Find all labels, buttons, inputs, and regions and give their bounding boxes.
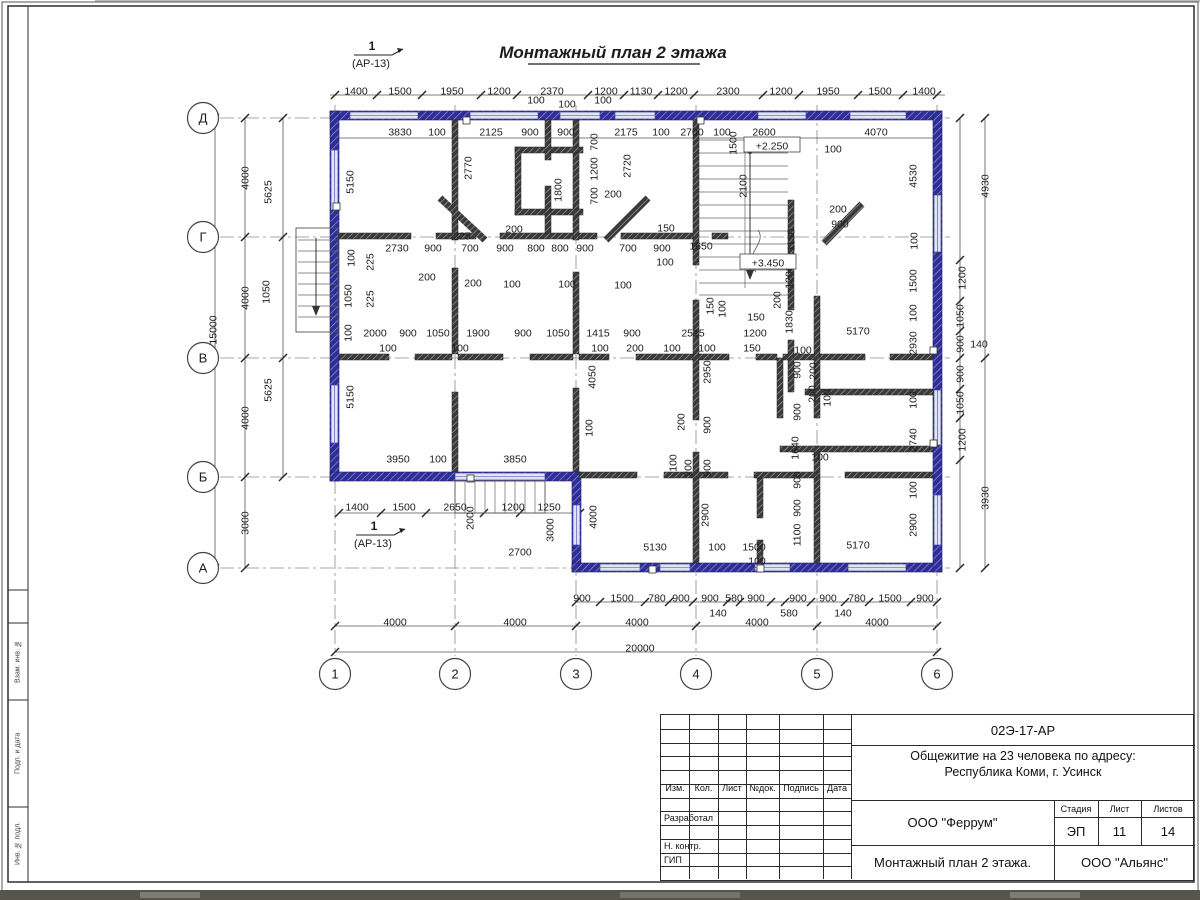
dimension-label: 4000: [240, 286, 252, 310]
dimension-label: 900: [955, 335, 967, 353]
interior-wall: [339, 354, 389, 360]
dimension-label: 1200: [589, 157, 601, 181]
interior-wall: [545, 186, 551, 233]
dimension-label: 100: [558, 99, 576, 111]
dimension-label: 3950: [386, 454, 410, 466]
interior-wall: [664, 472, 728, 478]
interior-wall: [756, 354, 777, 360]
revision-column-header: Подпись: [785, 781, 817, 794]
revision-column-header: Лист: [716, 781, 748, 794]
dimension-label: 900: [623, 328, 641, 340]
dimension-label: 4070: [864, 127, 888, 139]
interior-wall: [636, 354, 693, 360]
dimension-label: 1830: [784, 310, 796, 334]
interior-wall: [579, 354, 609, 360]
dimension-label: 200: [505, 224, 523, 236]
dimension-label: 100: [343, 324, 355, 342]
dimension-label: 5150: [345, 170, 357, 194]
dimension-label: 1500: [610, 593, 634, 605]
title-block: 02Э-17-АР Общежитие на 23 человека по ад…: [660, 714, 1194, 881]
dimension-label: 900: [672, 593, 690, 605]
dimension-label: 100: [908, 391, 920, 409]
axis-bubble-label: Б: [199, 470, 208, 485]
dimension-label: 2700: [508, 547, 532, 559]
dimension-label: 5170: [846, 326, 870, 338]
dimension-label: 100: [698, 343, 716, 355]
interior-wall: [754, 472, 817, 478]
dimension-label: 700: [589, 187, 601, 205]
dimension-label: 150: [657, 223, 675, 235]
dimension-label: 200: [808, 362, 820, 380]
interior-wall: [820, 354, 865, 360]
dimension-label: 900: [653, 243, 671, 255]
axis-bubble-label: 1: [331, 667, 338, 682]
title-block-line: [823, 715, 824, 879]
dimension-label: 2900: [908, 513, 920, 537]
dimension-label: 780: [848, 593, 866, 605]
dimension-label: 1130: [630, 86, 653, 98]
dimension-label: 4000: [625, 617, 649, 629]
sheet-title: Монтажный план 2 этажа.: [851, 845, 1054, 880]
dimension-label: 100: [811, 452, 829, 464]
dimension-label: 1200: [487, 86, 511, 98]
dimension-label: 100: [451, 343, 469, 355]
wall-pier: [697, 117, 704, 124]
dimension-label: 4050: [587, 365, 599, 389]
dimension-label: 100: [908, 481, 920, 499]
dimension-label: 1050: [343, 284, 355, 308]
dimension-label: 900: [702, 459, 714, 477]
dimension-label: 700: [461, 243, 479, 255]
dimension-label: 1640: [790, 436, 802, 460]
dimension-label: 1200: [957, 428, 969, 452]
dimension-label: 900: [424, 243, 442, 255]
dimension-label: 900: [399, 328, 417, 340]
title-block-role-label: ГИП: [661, 853, 724, 866]
dimension-label: 900: [789, 593, 807, 605]
design-org: ООО "Альянс": [1054, 845, 1195, 880]
stairs-and-details: [296, 140, 788, 513]
revision-column-header: Дата: [821, 781, 853, 794]
dimension-label: 100: [429, 454, 447, 466]
dimension-label: 5625: [263, 378, 275, 402]
dimension-label: 1050: [546, 328, 570, 340]
drawing-title: Монтажный план 2 этажа: [499, 43, 727, 62]
dimension-label: 200: [829, 204, 847, 216]
sheets-total: 14: [1141, 817, 1195, 845]
dimension-label: 1200: [501, 502, 525, 514]
dimension-label: 100: [824, 144, 842, 156]
dimension-label: 4930: [980, 174, 992, 198]
wall-pier: [649, 566, 656, 573]
dimension-label: 5170: [846, 540, 870, 552]
dimension-label: 100: [503, 279, 521, 291]
dimension-label: 1500: [878, 593, 902, 605]
dimension-label: 1500: [392, 502, 416, 514]
dimension-label: 100: [594, 95, 612, 107]
dimension-label: 4000: [745, 617, 769, 629]
dimension-label: 100: [346, 249, 358, 267]
dimension-label: 150: [747, 312, 765, 324]
interior-wall: [757, 478, 763, 518]
dimension-label: 900: [576, 243, 594, 255]
dimension-label: 1400: [344, 86, 368, 98]
dimension-label: 3000: [240, 511, 252, 535]
dimension-label: 700: [619, 243, 637, 255]
level-mark: +3.450: [752, 258, 785, 270]
dimension-label: 1500: [728, 131, 740, 155]
dimension-label: 2100: [738, 174, 750, 198]
frame-stamp-label: Инв. № подл.: [9, 807, 27, 880]
wall-pier: [333, 203, 340, 210]
document-code: 02Э-17-АР: [851, 715, 1195, 745]
dimension-label: 4000: [865, 617, 889, 629]
interior-wall: [777, 358, 783, 418]
interior-wall: [530, 354, 573, 360]
axis-bubble-label: 3: [572, 667, 579, 682]
project-name-line1: Общежитие на 23 человека по адресу:: [851, 748, 1195, 764]
dimension-label: 100: [652, 127, 670, 139]
porch-arrow-head: [312, 306, 320, 316]
sheets-label: Листов: [1141, 800, 1195, 817]
dimension-label: 5130: [643, 542, 667, 554]
interior-wall: [573, 388, 579, 472]
dimension-label: 4000: [240, 166, 252, 190]
interior-wall: [515, 147, 521, 215]
dimension-label: 1800: [553, 178, 565, 202]
interior-wall: [436, 233, 452, 239]
dimension-label: 2000: [465, 506, 477, 530]
dimension-label: 5625: [263, 180, 275, 204]
dimension-label: 5150: [345, 385, 357, 409]
axis-bubble-label: 4: [692, 667, 699, 682]
title-block-role-label: Разработал: [661, 811, 724, 824]
title-block-line: [851, 800, 1195, 801]
revision-column-header: №док.: [747, 781, 779, 794]
axis-bubble-label: 5: [813, 667, 820, 682]
title-block-line: [1054, 817, 1195, 818]
dimension-label: 140: [970, 339, 988, 351]
dimension-label: 1200: [743, 328, 767, 340]
contractor-org: ООО "Феррум": [851, 800, 1054, 845]
dimension-label: 1050: [955, 391, 967, 415]
dimension-label: 100: [584, 419, 596, 437]
title-block-role-label: Н. контр.: [661, 839, 724, 852]
dimension-label: 200: [626, 343, 644, 355]
axis-bubble-label: 2: [451, 667, 458, 682]
title-block-line: [851, 845, 1195, 846]
stage-label: Стадия: [1054, 800, 1098, 817]
dimension-label: 150: [705, 297, 717, 315]
axis-grid: [220, 105, 950, 656]
dimension-label: 1900: [466, 328, 490, 340]
section-mark-ref: (АР-13): [354, 538, 392, 550]
title-block-line: [1098, 800, 1099, 845]
dimension-label: 4000: [503, 617, 527, 629]
stage-value: ЭП: [1054, 817, 1098, 845]
title-block-line: [1141, 800, 1142, 845]
dimension-label: 225: [365, 290, 377, 308]
dimension-label: 200: [683, 459, 695, 477]
interior-wall: [693, 300, 699, 420]
dimension-label: 100: [668, 454, 680, 472]
dimension-label: 900: [792, 403, 804, 421]
dimension-label: 900: [496, 243, 514, 255]
dimension-label: 100: [794, 345, 812, 357]
dimension-label: 4000: [240, 406, 252, 430]
dimension-label: 20000: [625, 643, 654, 655]
dimension-label: 3930: [980, 486, 992, 510]
wall-pier: [930, 347, 937, 354]
dimension-label: 900: [573, 593, 591, 605]
dimension-label: 4530: [908, 164, 920, 188]
dimension-label: 900: [702, 416, 714, 434]
dimension-label: 100: [717, 300, 729, 318]
dimension-label: 1050: [426, 328, 450, 340]
dimension-label: 1650: [689, 241, 713, 253]
dimension-label: 1200: [769, 86, 793, 98]
wall-pier: [463, 117, 470, 124]
interior-wall: [579, 233, 597, 239]
dimension-label: 200: [464, 278, 482, 290]
axis-bubble-label: Г: [199, 230, 206, 245]
dimension-label: 900: [514, 328, 532, 340]
dimension-label: 3000: [545, 518, 557, 542]
interior-wall: [339, 233, 411, 239]
interior-wall: [458, 354, 503, 360]
axis-bubble-label: Д: [199, 111, 208, 126]
dimension-label: 100: [558, 279, 576, 291]
interior-wall: [579, 472, 637, 478]
dimension-label: 1400: [345, 502, 369, 514]
axis-bubble-label: А: [199, 561, 208, 576]
dimension-label: 3850: [503, 454, 527, 466]
revision-column-header: Кол.: [688, 781, 720, 794]
dimension-label: 900: [792, 361, 804, 379]
dimension-label: 900: [831, 219, 849, 231]
interior-wall: [699, 354, 729, 360]
section-mark-ref: (АР-13): [352, 58, 390, 70]
dimension-label: 4000: [588, 505, 600, 529]
sheet-label: Лист: [1098, 800, 1141, 817]
dimension-label: 900: [557, 127, 575, 139]
dimension-label: 100: [908, 304, 920, 322]
dimension-label: 225: [453, 231, 471, 243]
dimension-label: 900: [521, 127, 539, 139]
dimension-label: 100: [527, 95, 545, 107]
dimension-label: 1500: [388, 86, 412, 98]
axis-bubble-label: 6: [933, 667, 940, 682]
dimension-label: 100: [591, 343, 609, 355]
interior-wall: [814, 446, 820, 563]
dimension-label: 140: [834, 608, 852, 620]
dimension-label: 100: [663, 343, 681, 355]
dimension-label: 580: [780, 608, 798, 620]
dimension-label: 1100: [792, 524, 804, 547]
dimension-label: 900: [955, 365, 967, 383]
interior-wall: [452, 392, 458, 472]
dimension-label: 1500: [868, 86, 892, 98]
dimension-label: 1950: [440, 86, 464, 98]
wall-pier: [930, 440, 937, 447]
dimension-label: 900: [819, 593, 837, 605]
interior-wall: [415, 354, 452, 360]
dimension-label: 1050: [261, 280, 273, 304]
dimension-label: 2000: [363, 328, 387, 340]
project-name-line2: Республика Коми, г. Усинск: [851, 764, 1195, 780]
axis-bubble-label: В: [199, 351, 208, 366]
sheet-number: 11: [1098, 817, 1141, 845]
frame-stamp-label: Подп. и дата: [9, 700, 27, 807]
dimension-label: 2740: [908, 428, 920, 452]
interior-wall: [712, 233, 728, 239]
dimension-label: 100: [909, 232, 921, 250]
dimension-label: 2950: [702, 360, 714, 384]
dimension-label: 2175: [614, 127, 638, 139]
axis-bubbles: 123456ДГВБА: [188, 103, 953, 690]
dimension-label: 100: [708, 542, 726, 554]
title-block-line: [851, 715, 852, 879]
dimension-label: 1500: [908, 269, 920, 293]
dimension-label: 100: [614, 280, 632, 292]
dimension-label: 900: [916, 593, 934, 605]
revision-column-header: Изм.: [659, 781, 691, 794]
dimension-label: 3830: [388, 127, 412, 139]
dimension-label: 2730: [385, 243, 409, 255]
interior-wall: [452, 268, 458, 354]
dimension-label: 1200: [664, 86, 688, 98]
interior-wall: [545, 120, 551, 160]
interior-wall: [845, 472, 933, 478]
dimension-label: 200: [676, 413, 688, 431]
dimension-label: 200: [604, 189, 622, 201]
dimension-label: 150: [743, 343, 761, 355]
interior-wall: [452, 120, 458, 240]
dimension-label: 15000: [208, 315, 220, 344]
dimension-label: 2300: [716, 86, 740, 98]
dimension-label: 1250: [537, 502, 561, 514]
dimension-label: 800: [551, 243, 569, 255]
dimension-label: 100: [822, 389, 834, 407]
title-block-line: [1054, 800, 1055, 880]
dimension-label: 200: [807, 385, 819, 403]
dimension-label: 1050: [955, 304, 967, 328]
dimension-label: 225: [365, 253, 377, 271]
dimension-label: 1500: [742, 542, 766, 554]
dimension-label: 900: [747, 593, 765, 605]
drawing-sheet: Монтажный план 2 этажа 14001500195012002…: [0, 0, 1200, 900]
dimension-label: 800: [527, 243, 545, 255]
dimension-label: 140: [709, 608, 727, 620]
dimension-label: 2125: [479, 127, 503, 139]
dimension-label: 1130: [786, 229, 798, 252]
title-block-line: [746, 715, 747, 879]
dimension-label: 2900: [700, 503, 712, 527]
dimension-label: 100: [428, 127, 446, 139]
dimension-label: 1200: [957, 266, 969, 290]
dimension-label: 2515: [681, 328, 705, 340]
title-block-line: [779, 715, 780, 879]
dimension-label: 900: [701, 593, 719, 605]
dimension-label: 1950: [816, 86, 840, 98]
dimension-label: 1400: [912, 86, 936, 98]
dimension-label: 100: [379, 343, 397, 355]
dimension-label: 100: [656, 257, 674, 269]
dimension-label: 1415: [586, 328, 610, 340]
dimension-label: 2770: [463, 156, 475, 180]
stair-arrow-head: [746, 270, 754, 280]
dimension-label: 900: [792, 471, 804, 489]
dimension-label: 2930: [908, 331, 920, 355]
dimension-label: 4000: [383, 617, 407, 629]
frame-stamp-label: Взам. инв. №: [9, 623, 27, 700]
section-mark-number: 1: [369, 39, 376, 53]
dimension-label: 2720: [622, 154, 634, 178]
level-mark: +2.250: [756, 141, 789, 153]
title-block-line: [851, 745, 1195, 746]
section-mark-number: 1: [371, 519, 378, 533]
dimension-label: 100: [748, 556, 766, 568]
dimension-label: 780: [648, 593, 666, 605]
dimension-label: 900: [792, 499, 804, 517]
dimension-label: 2700: [680, 127, 704, 139]
dimension-label: 200: [418, 272, 436, 284]
dimension-label: 2650: [443, 502, 467, 514]
dimension-label: 200: [772, 291, 784, 309]
dimension-label: 580: [725, 593, 743, 605]
dimension-label: 700: [589, 133, 601, 151]
